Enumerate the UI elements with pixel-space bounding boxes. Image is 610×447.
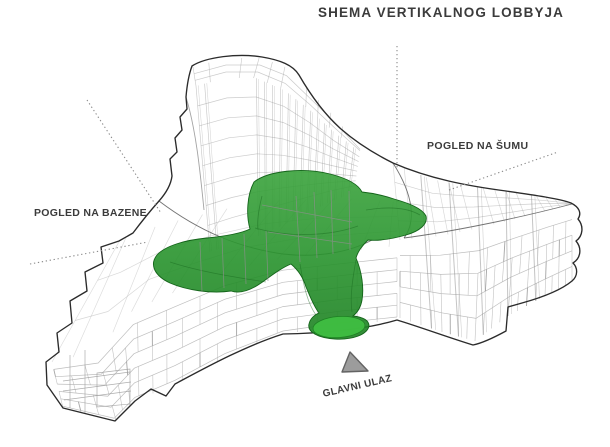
mesh-line (521, 236, 522, 255)
main-entrance-marker (342, 352, 368, 372)
mesh-line (517, 292, 518, 311)
mesh-line (193, 67, 196, 86)
diagram-canvas: SHEMA VERTIKALNOG LOBBYJA POGLED NA ŠUMU… (0, 0, 610, 447)
pools-view-line-lower (30, 242, 148, 264)
mesh-line (487, 248, 488, 270)
mesh-line (306, 88, 307, 107)
mesh-line (502, 262, 503, 282)
mesh-line (477, 273, 478, 296)
mesh-line (267, 62, 272, 83)
mesh-line (198, 85, 212, 251)
mesh-line (509, 277, 510, 296)
mesh-line (195, 72, 360, 151)
mesh-line (478, 187, 484, 334)
mesh-line (118, 385, 120, 397)
mesh-line (546, 262, 547, 279)
mesh-line (527, 288, 528, 306)
mesh-line (254, 58, 260, 78)
mesh-line (201, 135, 358, 167)
mesh-line (56, 377, 58, 384)
diagram-title: SHEMA VERTIKALNOG LOBBYJA (318, 5, 564, 20)
mesh-line (59, 391, 61, 398)
mesh-line (54, 369, 56, 376)
mesh-line (341, 126, 342, 137)
pools-view-label: POGLED NA BAZENE (34, 207, 147, 219)
mesh-line (546, 244, 547, 261)
mesh-line (196, 86, 210, 252)
mesh-line (120, 397, 122, 410)
mesh-line (467, 317, 468, 339)
mesh-line (504, 242, 505, 262)
back-wing-inner-edge (186, 97, 204, 210)
pools-view-line-upper (87, 100, 161, 213)
mesh-line (88, 375, 91, 385)
mesh-line (475, 318, 476, 341)
mesh-line (112, 348, 114, 361)
mesh-line (528, 269, 529, 287)
building-axonometric-drawing (0, 0, 610, 447)
mesh-line (426, 177, 436, 236)
mesh-line (468, 274, 469, 296)
mesh-line (500, 302, 501, 322)
mesh-line (529, 251, 530, 269)
mesh-line (506, 191, 508, 316)
mesh-line (239, 58, 242, 78)
mesh-line (281, 67, 285, 89)
mesh-line (485, 269, 486, 291)
right-wing-parapet-edge (404, 204, 572, 238)
mesh-line (329, 113, 331, 128)
mesh-line (78, 402, 80, 411)
mesh-line (545, 279, 546, 296)
mesh-line (126, 348, 127, 362)
mesh-line (493, 287, 494, 308)
mesh-line (103, 372, 106, 383)
mesh-line (194, 65, 360, 149)
mesh-line (112, 406, 115, 417)
mesh-line (494, 266, 495, 287)
mesh-line (209, 63, 211, 82)
vertical-lobby-volume (153, 171, 426, 340)
mesh-line (73, 237, 126, 358)
lobby-body (153, 171, 426, 340)
plinth-box (97, 369, 130, 407)
mesh-line (469, 252, 470, 274)
mesh-line (476, 296, 477, 319)
mesh-line (127, 362, 128, 376)
mesh-line (74, 384, 76, 393)
mesh-line (198, 97, 360, 157)
mesh-line (538, 230, 539, 248)
mesh-line (492, 308, 493, 329)
forest-view-label: POGLED NA ŠUMU (427, 140, 528, 152)
mesh-line (520, 255, 521, 274)
